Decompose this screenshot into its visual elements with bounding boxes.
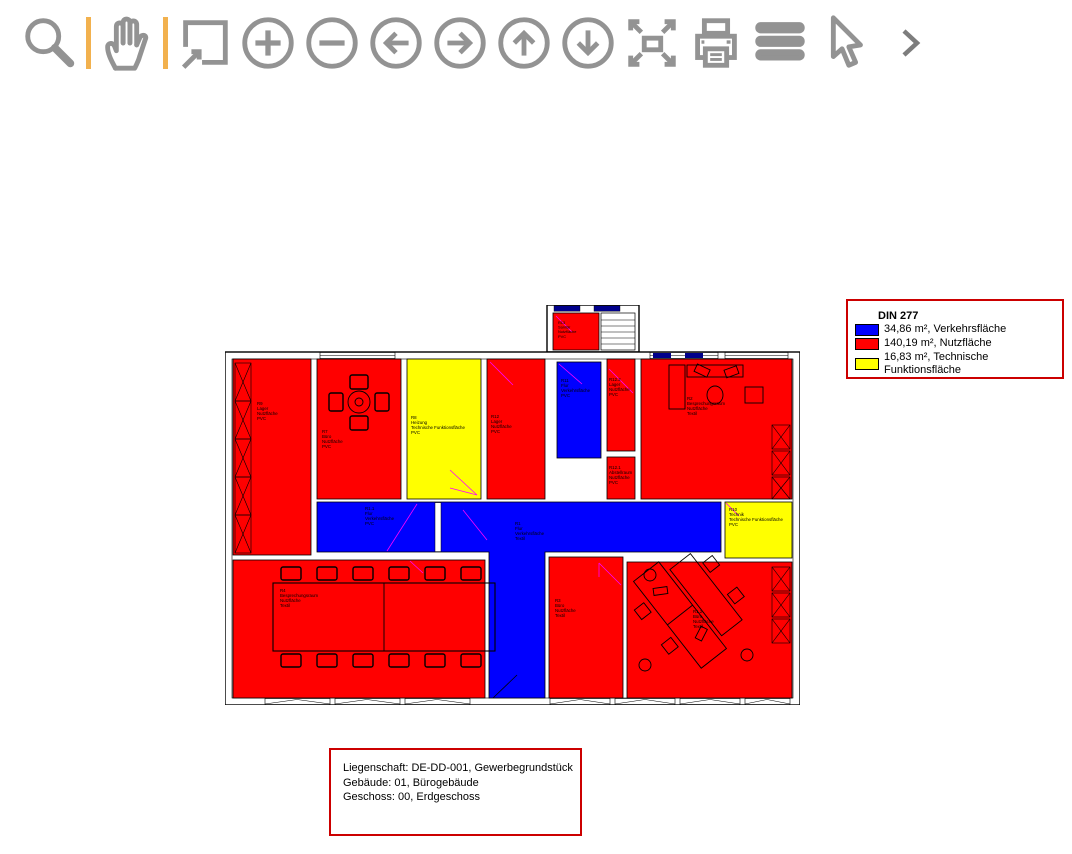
svg-text:Textil: Textil <box>693 624 703 629</box>
circle-arrow-right-icon <box>429 12 491 74</box>
window-arrow-icon <box>173 12 235 74</box>
svg-text:PVC: PVC <box>609 480 618 485</box>
corridor-door <box>435 503 441 552</box>
svg-text:Textil: Textil <box>515 536 525 541</box>
room-r4[interactable]: R4 Besprechungsraum Nutzfläche Textil <box>233 560 495 698</box>
circle-arrow-up-icon <box>493 12 555 74</box>
window-dark <box>594 306 620 312</box>
floor-plan: R13 Sanitär Nutzfläche PVC R9 Lager Nutz… <box>225 305 800 705</box>
legend-row-verkehrsflaeche: 34,86 m², Verkehrsfläche <box>855 323 1062 336</box>
layers-button[interactable] <box>749 12 811 74</box>
window-dark <box>554 306 580 312</box>
room-r13[interactable]: R13 Sanitär Nutzfläche PVC <box>553 313 599 350</box>
room-r2[interactable]: R2 Besprechungsraum Nutzfläche Textil <box>641 359 792 499</box>
pan-up-button[interactable] <box>493 12 555 74</box>
pan-right-button[interactable] <box>429 12 491 74</box>
info-line-liegenschaft: Liegenschaft: DE-DD-001, Gewerbegrundstü… <box>343 761 580 776</box>
svg-text:PVC: PVC <box>561 393 570 398</box>
legend-row-nutzflaeche: 140,19 m², Nutzfläche <box>855 337 1062 350</box>
circle-arrow-left-icon <box>365 12 427 74</box>
circle-plus-icon <box>237 12 299 74</box>
legend-title: DIN 277 <box>878 310 1062 322</box>
horizontal-bars-icon <box>749 12 811 74</box>
room-r10[interactable]: R10 Technik Technische Funktionsfläche P… <box>725 502 792 558</box>
chevron-right-icon <box>896 21 926 65</box>
blue-swatch <box>855 324 879 336</box>
zoom-out-button[interactable] <box>301 12 363 74</box>
svg-text:PVC: PVC <box>365 521 374 526</box>
toolbar-separator <box>86 17 91 69</box>
toolbar-separator <box>163 17 168 69</box>
zoom-window-button[interactable] <box>173 12 235 74</box>
hand-icon <box>96 12 158 74</box>
room-r11[interactable]: R11 Flur Verkehrsfläche PVC <box>557 362 601 458</box>
room-r12-1[interactable]: R12.1 Abstellraum Nutzfläche PVC <box>607 457 635 499</box>
svg-text:PVC: PVC <box>729 522 738 527</box>
red-swatch <box>855 338 879 350</box>
circle-arrow-down-icon <box>557 12 619 74</box>
room-r3[interactable]: R3 Büro Nutzfläche Textil <box>549 557 623 698</box>
zoom-select-button[interactable] <box>19 12 81 74</box>
property-info-box: Liegenschaft: DE-DD-001, Gewerbegrundstü… <box>329 748 582 836</box>
svg-text:PVC: PVC <box>322 444 331 449</box>
info-line-gebaeude: Gebäude: 01, Bürogebäude <box>343 776 580 791</box>
more-tools-button[interactable] <box>894 12 928 74</box>
magnifier-icon <box>19 12 81 74</box>
printer-icon <box>685 12 747 74</box>
legend-row-technische-funktionsflaeche: 16,83 m², Technische Funktionsfläche <box>855 351 1062 377</box>
room-r8[interactable]: R8 Heizung Technische Funktionsfläche PV… <box>407 359 481 499</box>
svg-text:PVC: PVC <box>411 430 420 435</box>
svg-text:Textil: Textil <box>555 613 565 618</box>
pan-down-button[interactable] <box>557 12 619 74</box>
print-button[interactable] <box>685 12 747 74</box>
legend-label: 140,19 m², Nutzfläche <box>884 337 992 350</box>
stairwell <box>601 313 635 350</box>
cursor-arrow-icon <box>813 12 875 74</box>
legend-label: 34,86 m², Verkehrsfläche <box>884 323 1006 336</box>
toolbar <box>18 10 929 76</box>
svg-text:Textil: Textil <box>687 411 697 416</box>
room-r12-2[interactable]: R12.2 Lager Nutzfläche PVC <box>607 359 635 451</box>
svg-text:Textil: Textil <box>280 603 290 608</box>
select-button[interactable] <box>813 12 875 74</box>
entry-opening <box>493 699 521 705</box>
yellow-swatch <box>855 358 879 370</box>
legend-box: DIN 277 34,86 m², Verkehrsfläche 140,19 … <box>846 299 1064 379</box>
legend-label: 16,83 m², Technische Funktionsfläche <box>884 351 1062 377</box>
zoom-extents-button[interactable] <box>621 12 683 74</box>
room-r7[interactable]: R7 Büro Nutzfläche PVC <box>317 359 401 499</box>
svg-text:PVC: PVC <box>609 392 618 397</box>
pan-left-button[interactable] <box>365 12 427 74</box>
svg-text:PVC: PVC <box>257 416 266 421</box>
room-r9[interactable]: R9 Lager Nutzfläche PVC <box>233 359 311 555</box>
room-r12[interactable]: R12 Lager Nutzfläche PVC <box>487 359 545 499</box>
svg-text:PVC: PVC <box>558 334 566 339</box>
zoom-in-button[interactable] <box>237 12 299 74</box>
info-line-geschoss: Geschoss: 00, Erdgeschoss <box>343 790 580 805</box>
pan-button[interactable] <box>96 12 158 74</box>
circle-minus-icon <box>301 12 363 74</box>
expand-arrows-icon <box>621 12 683 74</box>
svg-text:PVC: PVC <box>491 429 500 434</box>
